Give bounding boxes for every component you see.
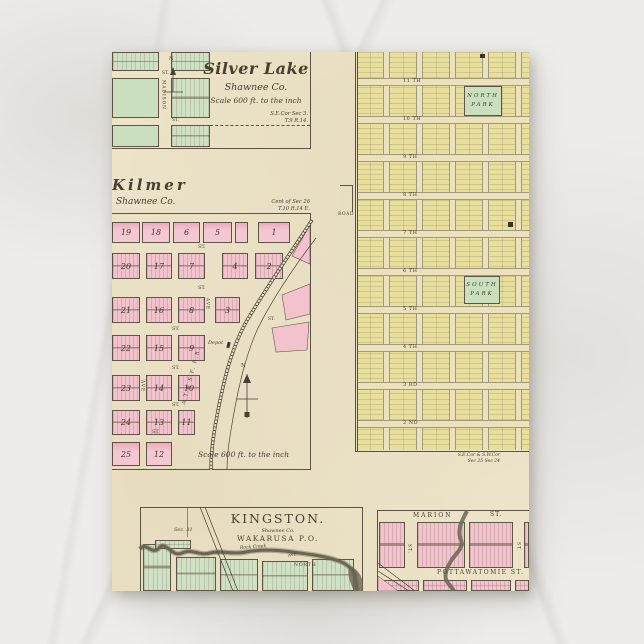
corner-survey-note: T.10 R.14 E. (252, 207, 310, 212)
street-label: ST. (490, 512, 502, 518)
map-border (377, 510, 529, 511)
section-line-double (355, 52, 358, 452)
street-label: ST. (268, 318, 275, 323)
map-block (515, 580, 529, 591)
creek-label: Rock Creek (240, 545, 267, 551)
street-label: 11 TH (403, 79, 421, 84)
street-label: 10 TH (403, 117, 421, 122)
kilmer-block: 16 (146, 297, 172, 323)
section-label: Sec. 31 (174, 528, 193, 533)
map-block (112, 52, 159, 71)
street-label: 5 TH (403, 307, 417, 312)
map-block (469, 522, 513, 568)
north-arrow-label: N (169, 57, 173, 62)
street-label: ST. (172, 366, 180, 371)
kilmer-block: 21 (112, 297, 140, 323)
map-title-silver-lake: Silver Lake (202, 61, 310, 77)
kilmer-block: 4 (222, 253, 248, 279)
kilmer-block: 23 (112, 375, 140, 401)
map-block (524, 522, 529, 568)
compass-north-label: N (241, 364, 246, 370)
street-label-vertical: ST. (515, 542, 520, 558)
kilmer-block: 24 (112, 410, 140, 435)
north-park-block: NORTH PARK (464, 86, 502, 116)
map-block-polygon (282, 284, 310, 320)
map-border (362, 507, 363, 591)
street-label: ST. (172, 119, 179, 124)
map-border (140, 507, 141, 591)
map-subtitle: Shawnee Co. (202, 83, 310, 93)
kilmer-block: 18 (142, 222, 170, 243)
building-icon (480, 54, 485, 58)
kilmer-block: 8 (178, 297, 205, 323)
map-title-kingston: KINGSTON. (217, 513, 339, 526)
kilmer-block: 1 (258, 222, 290, 243)
plat-grid (358, 52, 529, 450)
map-block (155, 540, 191, 549)
street-label: ST. (172, 403, 180, 408)
road-line (352, 185, 353, 212)
map-border (377, 510, 378, 591)
map-subtitle: Shawnee Co. (116, 198, 175, 207)
map-scale-note: Scale 600 ft. to the inch (202, 97, 310, 105)
map-border (355, 451, 529, 452)
street-label: 2 ND (403, 421, 418, 426)
map-block (471, 580, 511, 591)
kilmer-block (235, 222, 248, 243)
street-label: MARION (413, 513, 453, 519)
street-label: ST. (152, 430, 160, 435)
map-block (112, 78, 159, 118)
street-label: 7 TH (403, 231, 417, 236)
street-label-madison: MADISON (160, 80, 164, 118)
south-park-block: SOUTH PARK (464, 276, 500, 304)
corner-survey-note: Sec 25 Sec 24 (422, 460, 500, 465)
map-block (379, 580, 419, 591)
map-border (140, 507, 363, 508)
street-label: POTTAWATOMIE ST. (437, 570, 525, 576)
map-border (112, 148, 311, 149)
street-label-vertical: ST. (406, 544, 411, 560)
map-block (220, 559, 258, 591)
post-office-label: WAKARUSA P.O. (228, 535, 328, 543)
street-label: ST. (162, 72, 169, 77)
street-label: ST. (198, 286, 206, 291)
kilmer-block: 6 (173, 222, 200, 243)
map-block (176, 557, 216, 591)
building-icon (508, 222, 513, 227)
street-label: 4 TH (403, 345, 417, 350)
kilmer-block: 22 (112, 335, 140, 361)
marble-background: { "card": { "silver_lake": { "title": "S… (0, 0, 644, 644)
map-block (143, 544, 171, 591)
kilmer-block: 11 (178, 410, 195, 435)
corner-survey-note: S.E.Cor & S.W.Cor (422, 454, 500, 459)
map-block (379, 522, 405, 568)
street-label: ST. (172, 327, 180, 332)
kilmer-block: 20 (112, 253, 140, 279)
map-block (112, 125, 159, 147)
depot-building-icon (226, 342, 230, 349)
map-border (112, 213, 311, 214)
kilmer-block: 2 (255, 253, 283, 279)
map-border (310, 52, 311, 149)
street-label: ST. (198, 245, 206, 250)
section-dashed-line (210, 125, 310, 126)
map-block-polygon (272, 322, 309, 352)
street-label: 6 TH (403, 269, 417, 274)
kilmer-block: 14 (146, 375, 172, 401)
compass-icon (243, 374, 251, 383)
map-block (423, 580, 467, 591)
kilmer-block: 5 (203, 222, 232, 243)
map-block (417, 522, 465, 568)
corner-survey-note: Cent of Sec 26 (252, 200, 310, 205)
street-label: 8 TH (403, 193, 417, 198)
map-block-polygon (292, 225, 310, 264)
postcard: ST. MADISON ST. N Silver Lake Shawnee Co… (112, 52, 529, 591)
road-label: ROAD (338, 213, 354, 218)
kilmer-block: 15 (146, 335, 172, 361)
map-title-kilmer: Kilmer (112, 178, 188, 193)
map-block (171, 125, 210, 147)
street-label: NORTH (294, 564, 317, 569)
kilmer-block: 7 (178, 253, 205, 279)
map-border (112, 469, 311, 470)
kilmer-block: 12 (146, 442, 172, 466)
map-scale-note: Scale 600 ft. to the inch (198, 451, 289, 459)
map-block (312, 559, 354, 591)
depot-label: Depot (208, 341, 223, 346)
street-label: 3 RD (403, 383, 418, 388)
kilmer-block: 25 (112, 442, 140, 466)
map-border (310, 213, 311, 470)
compass-icon (245, 412, 250, 417)
avenue-label: AVE (204, 298, 208, 318)
avenue-label: AVE (139, 380, 143, 400)
corner-survey-note: T.9 R.14. (242, 119, 308, 124)
corner-survey-note: S.E.Cor Sec 3. (242, 112, 308, 117)
street-label: 9 TH (403, 155, 417, 160)
kilmer-block: 19 (112, 222, 140, 243)
avenue-label: AVE (288, 552, 297, 557)
kilmer-block: 3 (215, 297, 240, 323)
kilmer-block: 17 (146, 253, 172, 279)
road-line (340, 185, 352, 186)
